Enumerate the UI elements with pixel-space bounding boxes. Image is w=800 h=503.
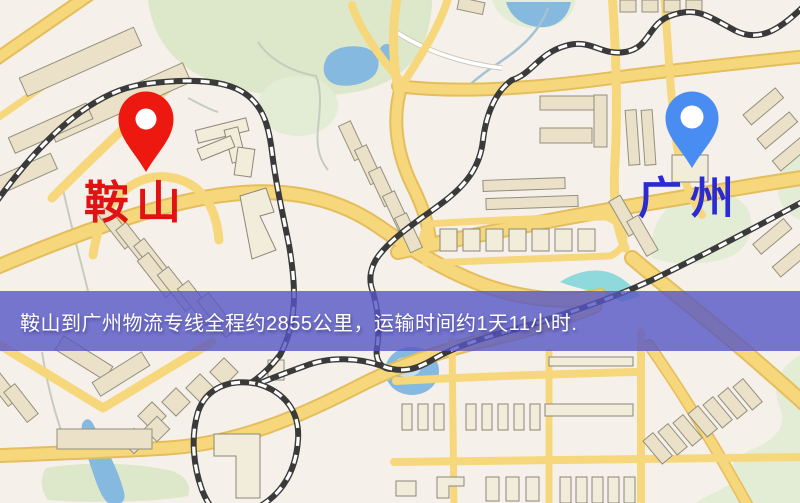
- origin-city-label: 鞍山: [84, 180, 188, 225]
- route-info-banner: 鞍山到广州物流专线全程约2855公里，运输时间约1天11小时.: [0, 291, 800, 351]
- route-info-text: 鞍山到广州物流专线全程约2855公里，运输时间约1天11小时.: [20, 307, 577, 336]
- map-view[interactable]: 鞍山 广州 鞍山到广州物流专线全程约2855公里，运输时间约1天11小时.: [0, 0, 800, 503]
- destination-city-label: 广州: [638, 177, 742, 221]
- map-canvas[interactable]: [0, 0, 800, 503]
